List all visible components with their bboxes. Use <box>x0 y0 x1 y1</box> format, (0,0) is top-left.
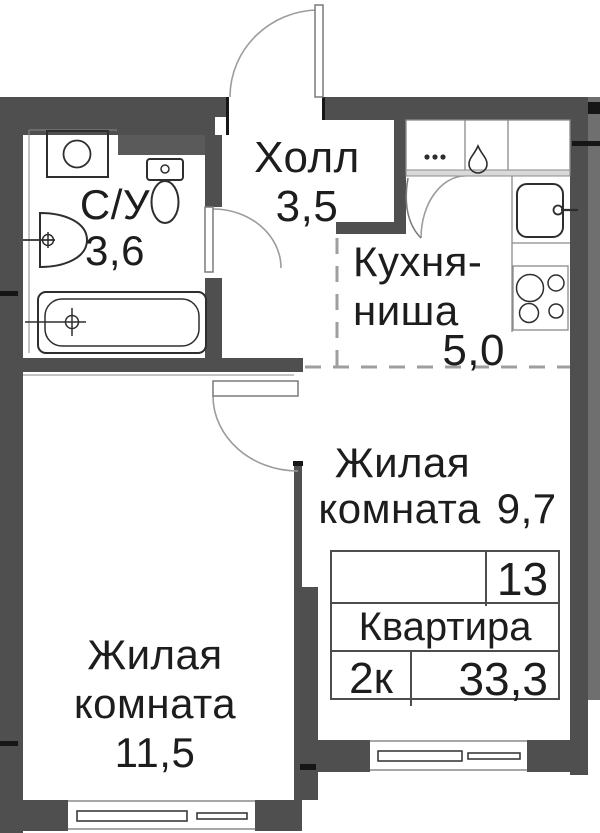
wall-joint-tick-left-upper <box>0 291 18 296</box>
wall-hall-bottom <box>18 358 303 372</box>
wall-joint-tick-right <box>572 141 600 146</box>
living-room-1-label-line2: комната 9,7 <box>300 484 575 533</box>
wall-bathroom-right-lower <box>205 278 222 358</box>
kitchen-area: 5,0 <box>400 326 505 375</box>
kitchen-name-line1: Кухня- <box>353 237 513 286</box>
hall-area: 3,5 <box>237 182 377 231</box>
wall-bottom-right-a <box>318 740 370 772</box>
vent-duct <box>118 135 205 155</box>
window-living-room-1 <box>370 740 527 772</box>
info-row-label: Квартира <box>332 602 558 650</box>
wall-bathroom-right-upper <box>205 135 222 207</box>
wall-bottom-right-b <box>527 740 570 772</box>
living-room-1-label-line1: Жилая <box>325 438 480 487</box>
living-room-2-name-line1: Жилая <box>40 630 270 679</box>
info-empty-cell <box>332 552 485 606</box>
door-hinge-cap <box>293 461 303 466</box>
wall-top-left <box>0 97 215 135</box>
door-jamb-left <box>226 97 229 135</box>
floor-plan: С/У 3,6 Холл 3,5 Кухня- ниша 5,0 Жилая к… <box>0 0 600 833</box>
kitchen-sink-icon <box>517 184 578 237</box>
info-row-area: 2к 33,3 <box>332 650 558 706</box>
door-jamb-right <box>322 97 325 120</box>
vent-dots-icon <box>424 154 445 159</box>
rooms-count: 2к <box>332 652 410 706</box>
bathtub-icon <box>25 292 206 353</box>
hall-label: Холл 3,5 <box>237 133 377 231</box>
kitchen-label: Кухня- ниша <box>353 237 513 335</box>
total-area: 33,3 <box>410 652 558 706</box>
wall-joint-tick-left-lower <box>0 741 18 746</box>
wall-right-outer <box>588 97 600 700</box>
wall-bottom-left-b <box>255 800 302 831</box>
living-room-2-label: Жилая комната 11,5 <box>40 630 270 777</box>
wall-kitchen-vertical <box>394 113 406 232</box>
wall-joint-tick-divider <box>300 764 316 770</box>
wall-right <box>570 97 588 775</box>
wall-bottom-left-a <box>18 800 68 831</box>
entrance-door <box>230 5 323 97</box>
unit-label: Квартира <box>332 604 558 650</box>
living-room-2-area: 11,5 <box>40 728 270 777</box>
living-room-2-door <box>213 381 298 471</box>
wall-left <box>0 97 23 833</box>
stove-icon <box>513 266 568 330</box>
wall-top-right <box>325 97 600 120</box>
window-living-room-2 <box>68 800 255 831</box>
bathroom-label: С/У 3,6 <box>55 182 175 274</box>
bathroom-name: С/У <box>55 182 175 228</box>
hall-name: Холл <box>237 133 377 182</box>
living-room-1-area: 9,7 <box>497 484 557 533</box>
washing-machine-icon <box>47 131 108 177</box>
wall-joint-tick-topright <box>588 102 600 114</box>
floor-number: 13 <box>485 552 558 606</box>
living-room-2-name-line2: комната <box>40 679 270 728</box>
living-room-1-name: комната <box>318 484 480 533</box>
bathroom-area: 3,6 <box>55 228 175 274</box>
apartment-info-table: 13 Квартира 2к 33,3 <box>330 550 560 700</box>
kitchen-door <box>406 176 465 238</box>
info-row-floor: 13 <box>332 552 558 602</box>
water-drop-icon <box>469 146 487 173</box>
